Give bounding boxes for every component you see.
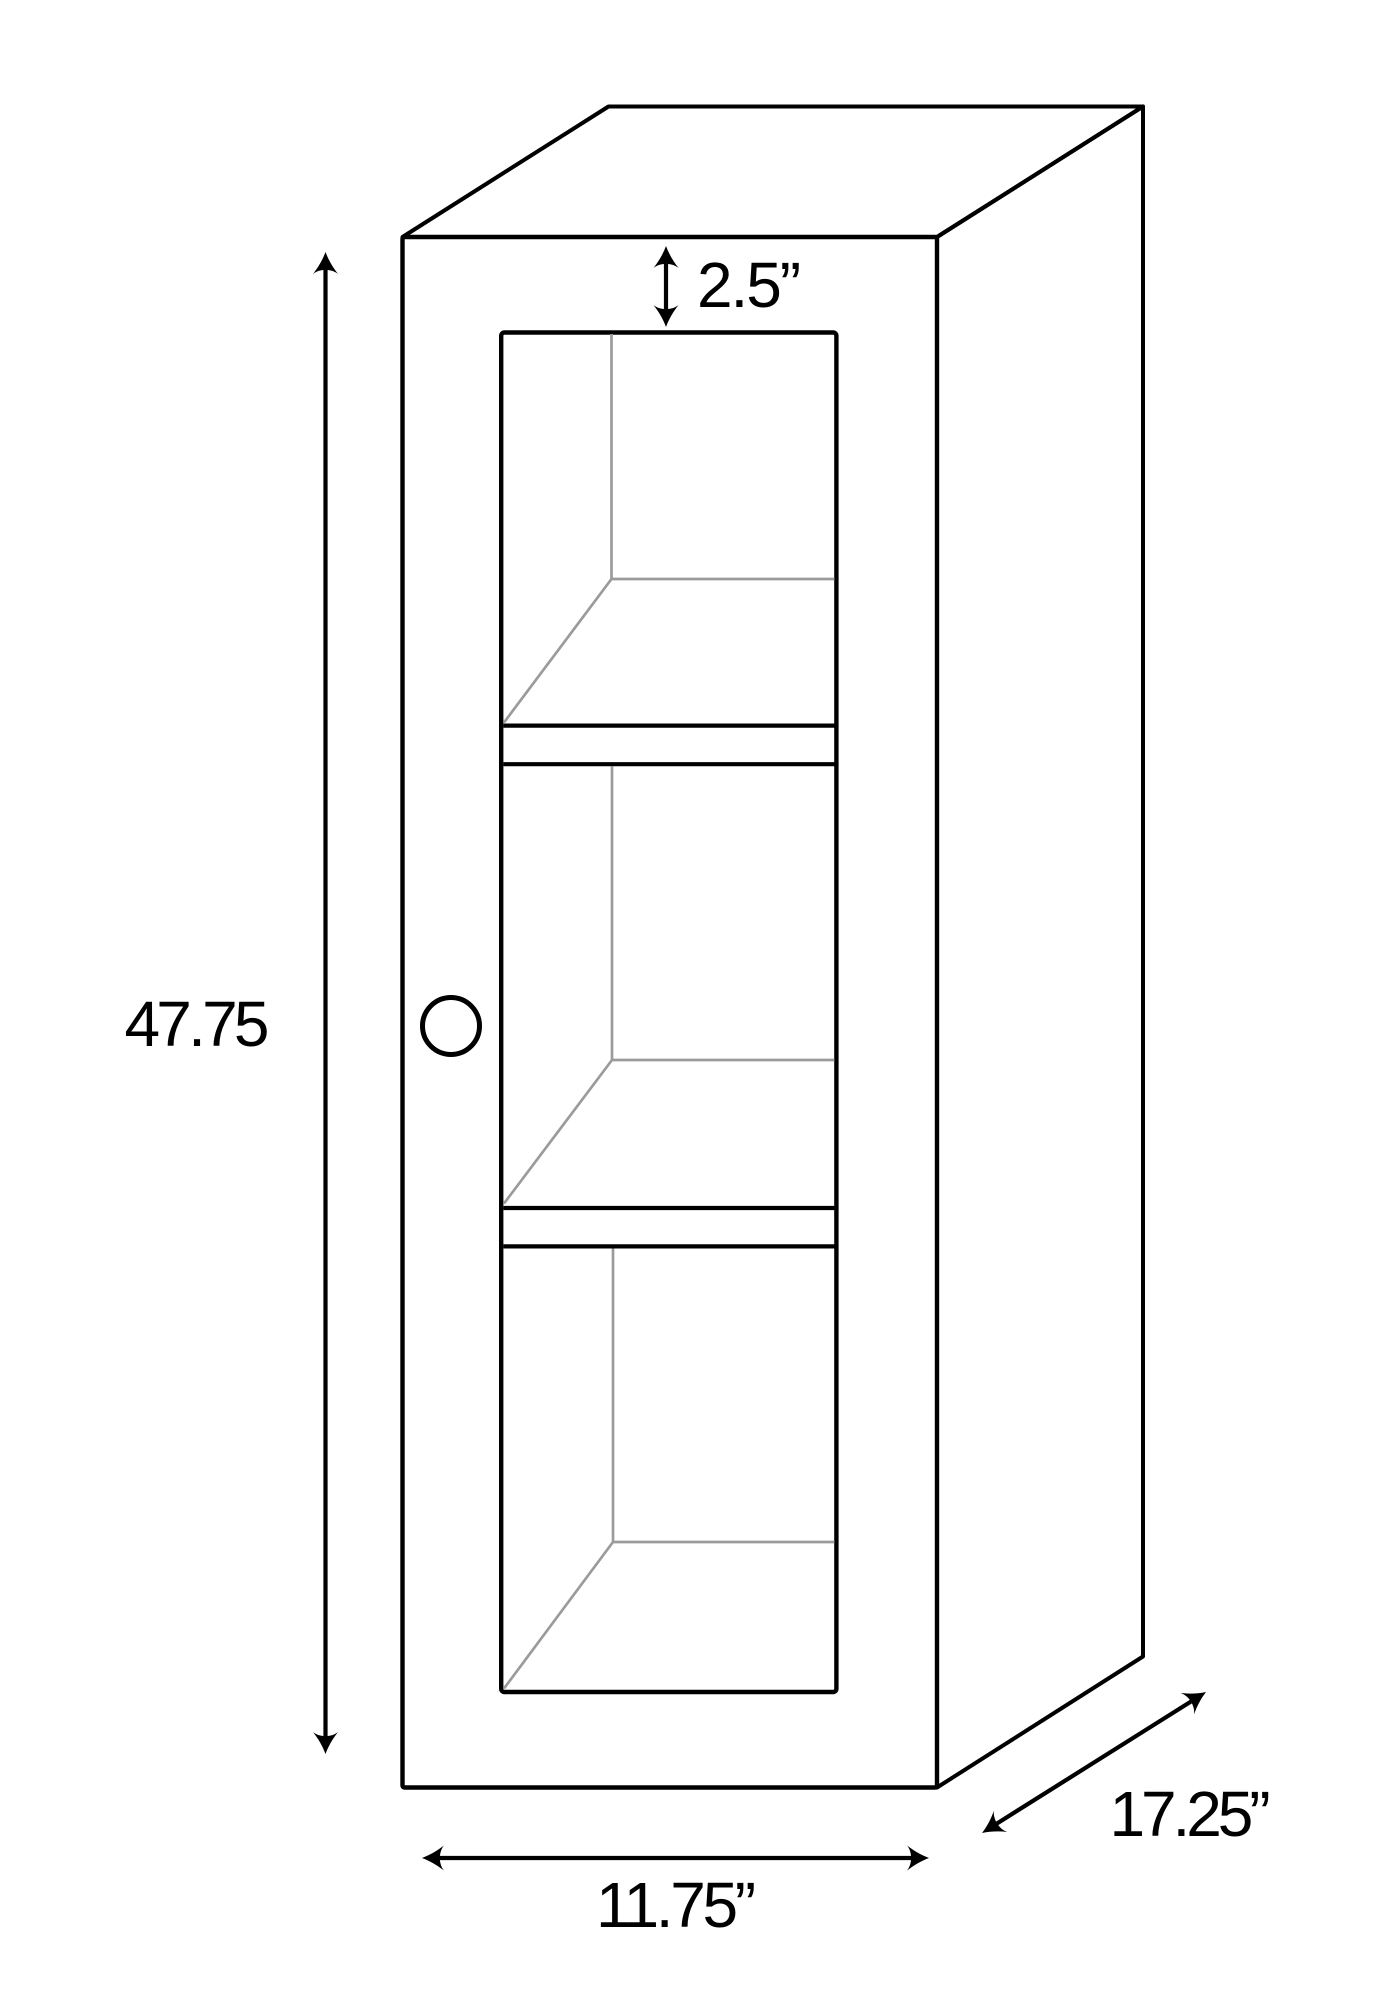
svg-text:17.25”: 17.25” bbox=[1110, 1778, 1271, 1850]
svg-text:47.75: 47.75 bbox=[125, 988, 270, 1060]
svg-text:2.5”: 2.5” bbox=[697, 249, 801, 321]
svg-text:11.75”: 11.75” bbox=[596, 1869, 756, 1941]
